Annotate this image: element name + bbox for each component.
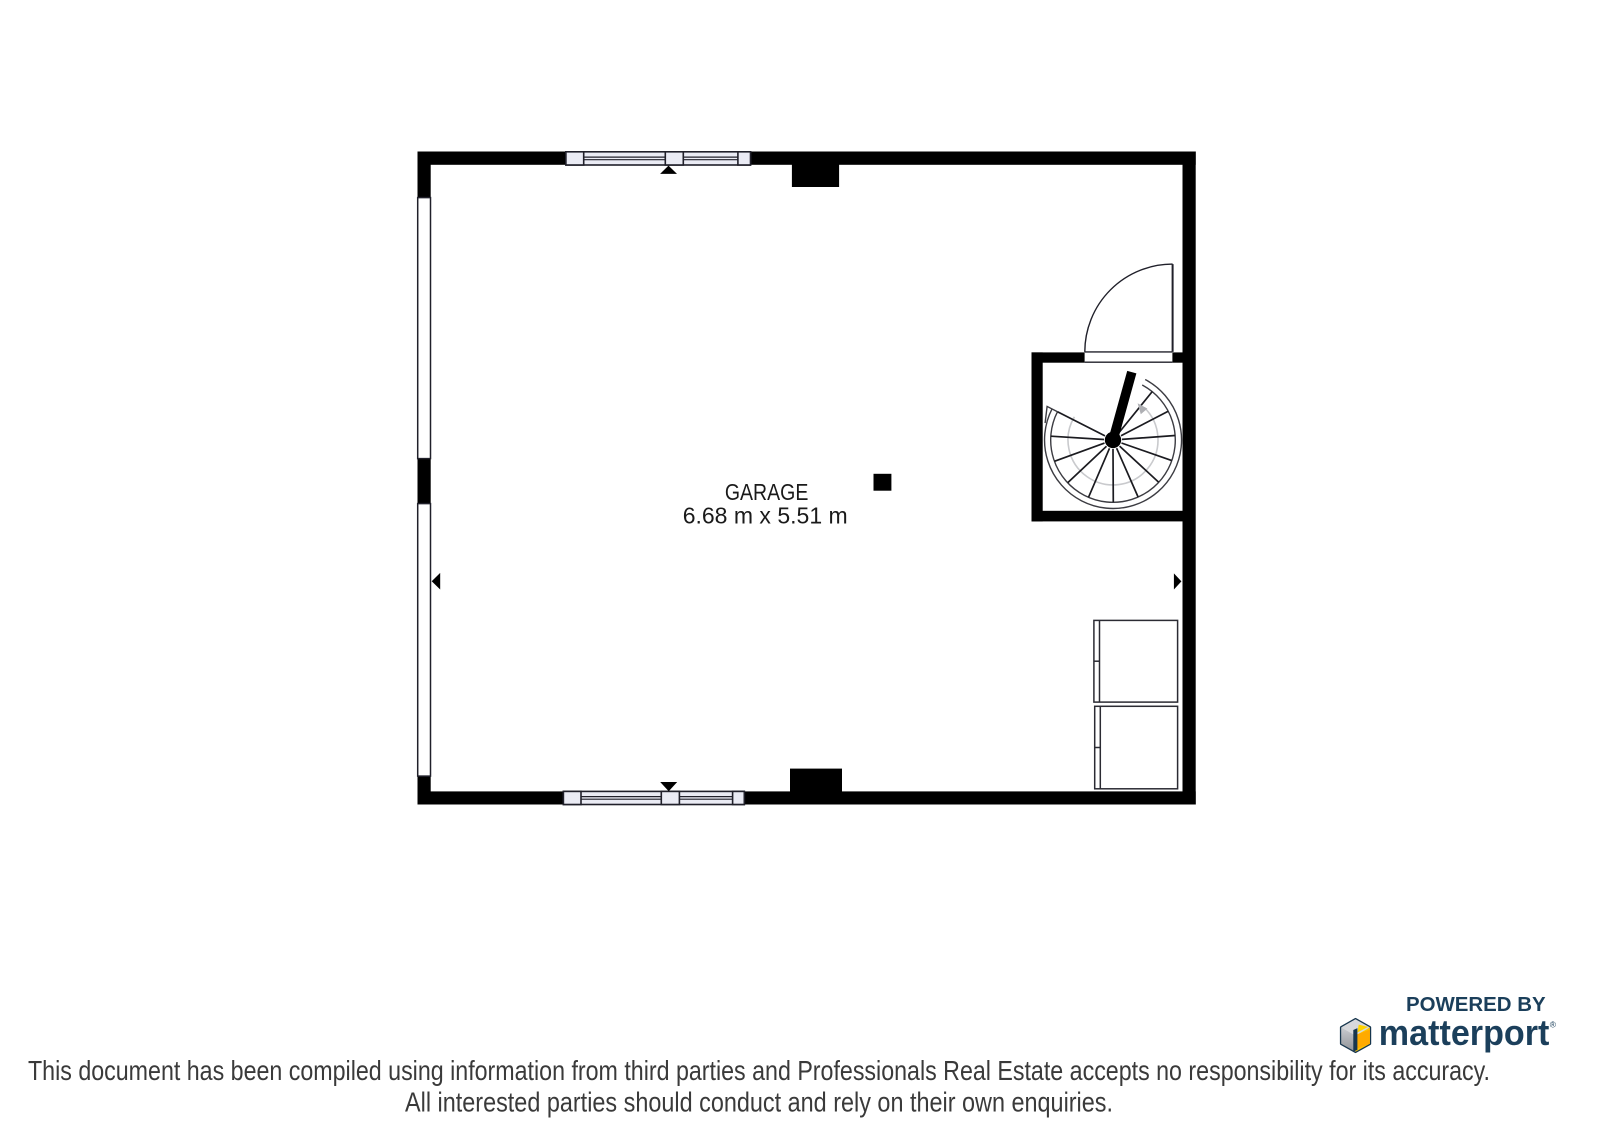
svg-text:This document has been compile: This document has been compiled using in… <box>28 1055 1490 1086</box>
svg-text:6.68 m x 5.51 m: 6.68 m x 5.51 m <box>683 502 848 528</box>
svg-text:GARAGE: GARAGE <box>725 479 809 505</box>
svg-text:®: ® <box>1550 1020 1557 1030</box>
svg-text:All interested parties should: All interested parties should conduct an… <box>405 1087 1113 1118</box>
svg-text:matterport: matterport <box>1379 1012 1550 1053</box>
